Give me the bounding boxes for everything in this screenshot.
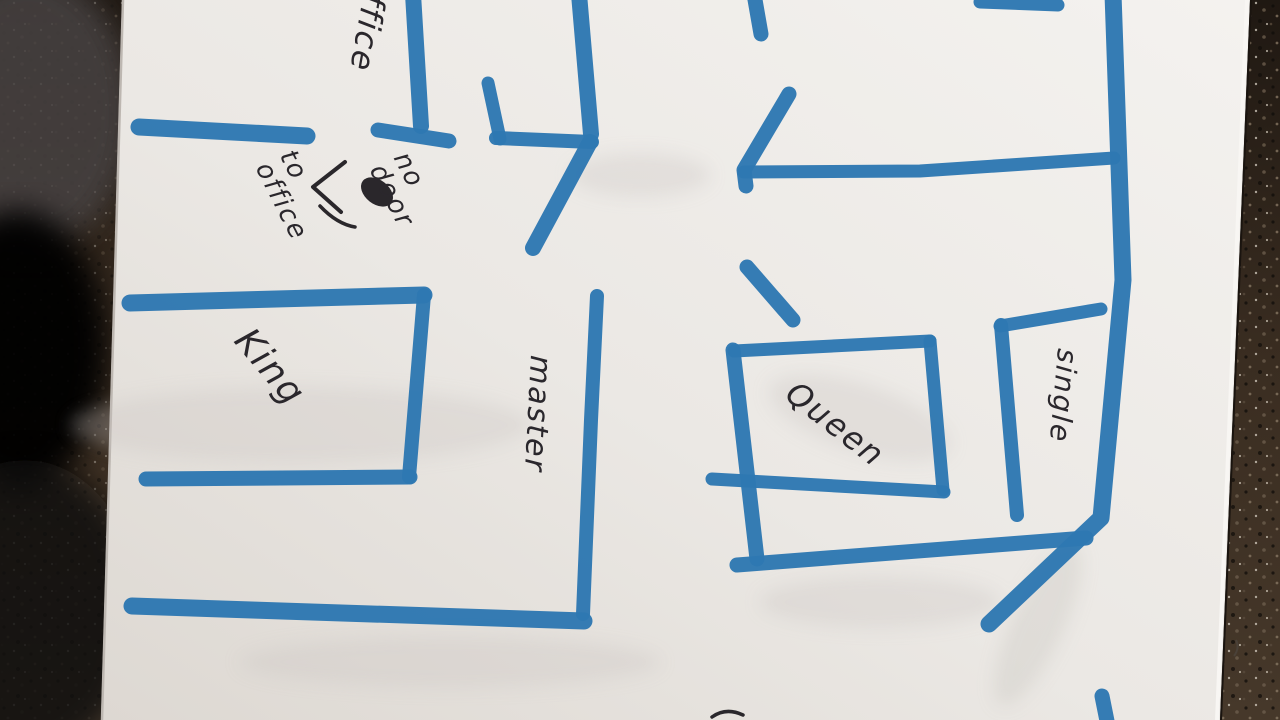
- wall-hall-top: [496, 138, 592, 142]
- smudge: [240, 636, 660, 688]
- wall-entry-stub: [754, 0, 761, 34]
- king-bed-bottom: [146, 477, 410, 479]
- king-bed-top: [130, 295, 424, 303]
- floor-plan-photo: office to office no door King master Que…: [0, 0, 1280, 720]
- wall-top-vertical-1: [413, 0, 421, 126]
- smudge: [570, 153, 710, 197]
- smudge: [760, 576, 1000, 628]
- wall-top-edge-blob: [980, 2, 1058, 5]
- label-master: master: [518, 354, 556, 473]
- sketch-scene: [0, 0, 1280, 720]
- wall-bottom-right-stub: [1102, 696, 1108, 720]
- wall-office-left: [139, 127, 307, 136]
- label-single: single: [1044, 347, 1082, 444]
